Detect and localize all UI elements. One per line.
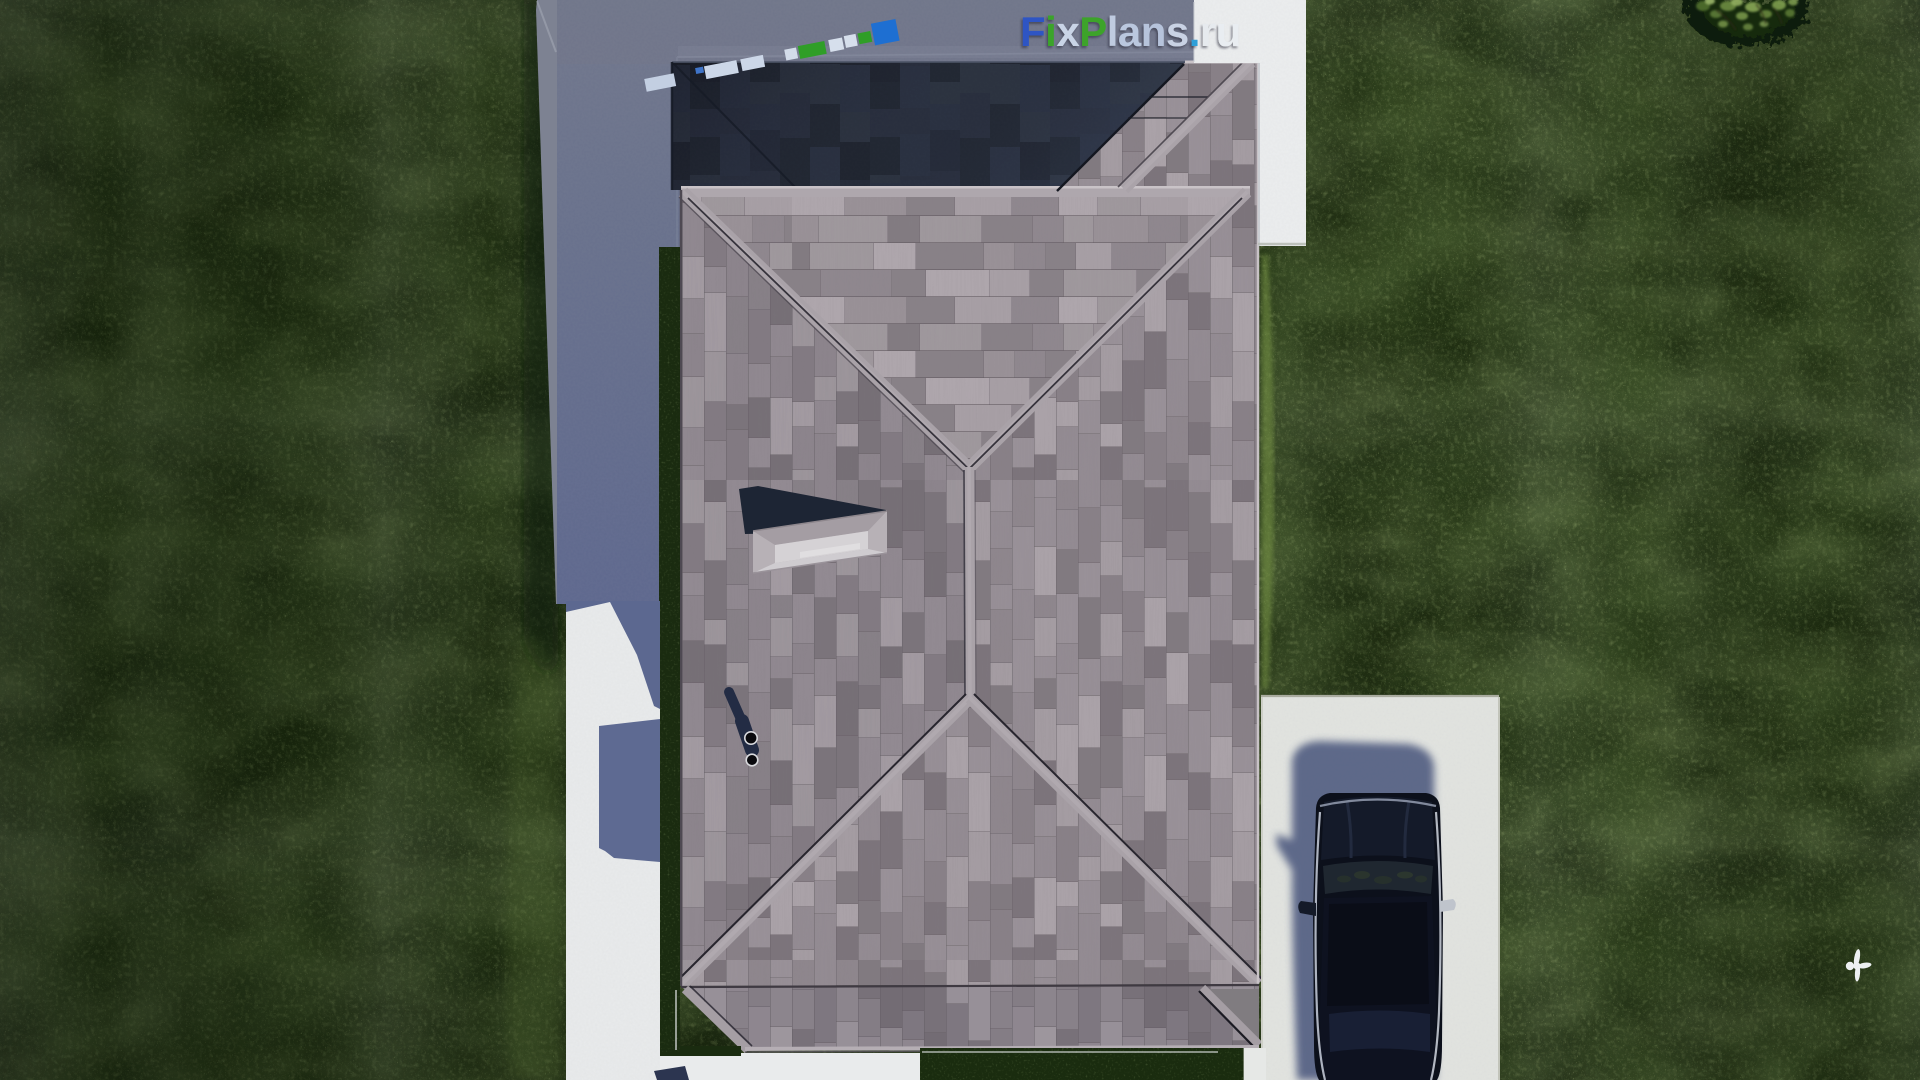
svg-text:FixPlans.ru: FixPlans.ru xyxy=(1020,8,1241,55)
